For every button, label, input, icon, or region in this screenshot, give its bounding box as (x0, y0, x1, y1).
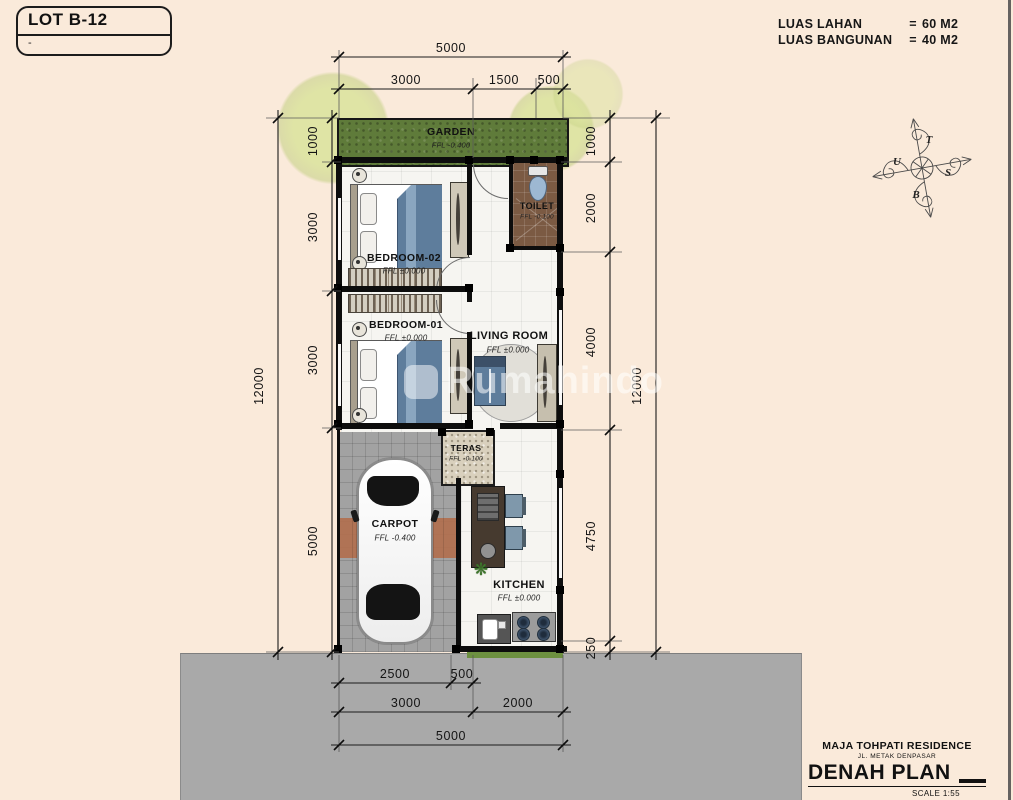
dimension-ticks (273, 52, 661, 750)
dim-bottom-a0: 2500 (380, 667, 410, 681)
dim-bottom-a1: 500 (451, 667, 474, 681)
dim-right-3: 4750 (584, 521, 598, 551)
dim-left-0: 1000 (306, 126, 320, 156)
dim-top-1: 1500 (489, 73, 519, 87)
dim-top-total: 5000 (436, 41, 466, 55)
dim-right-0: 1000 (584, 126, 598, 156)
dim-right-total: 12000 (630, 367, 644, 405)
dim-left-total: 12000 (252, 367, 266, 405)
dim-right-4: 250 (584, 637, 598, 660)
dim-bottom-total: 5000 (436, 729, 466, 743)
dim-bottom-b1: 2000 (503, 696, 533, 710)
dimension-overlay: 5000 3000 1500 500 1000 3000 3000 5000 1… (0, 0, 1013, 800)
floor-plan-sheet: GARDEN FFL -0.400 TERAS FFL -0.100 TOILE… (0, 0, 1013, 800)
dimension-labels: 5000 3000 1500 500 1000 3000 3000 5000 1… (252, 41, 644, 743)
dim-left-1: 3000 (306, 212, 320, 242)
dim-top-2: 500 (538, 73, 561, 87)
dim-left-2: 3000 (306, 345, 320, 375)
dim-bottom-b0: 3000 (391, 696, 421, 710)
dim-right-2: 4000 (584, 327, 598, 357)
dim-left-3: 5000 (306, 526, 320, 556)
dim-top-0: 3000 (391, 73, 421, 87)
dim-right-1: 2000 (584, 193, 598, 223)
